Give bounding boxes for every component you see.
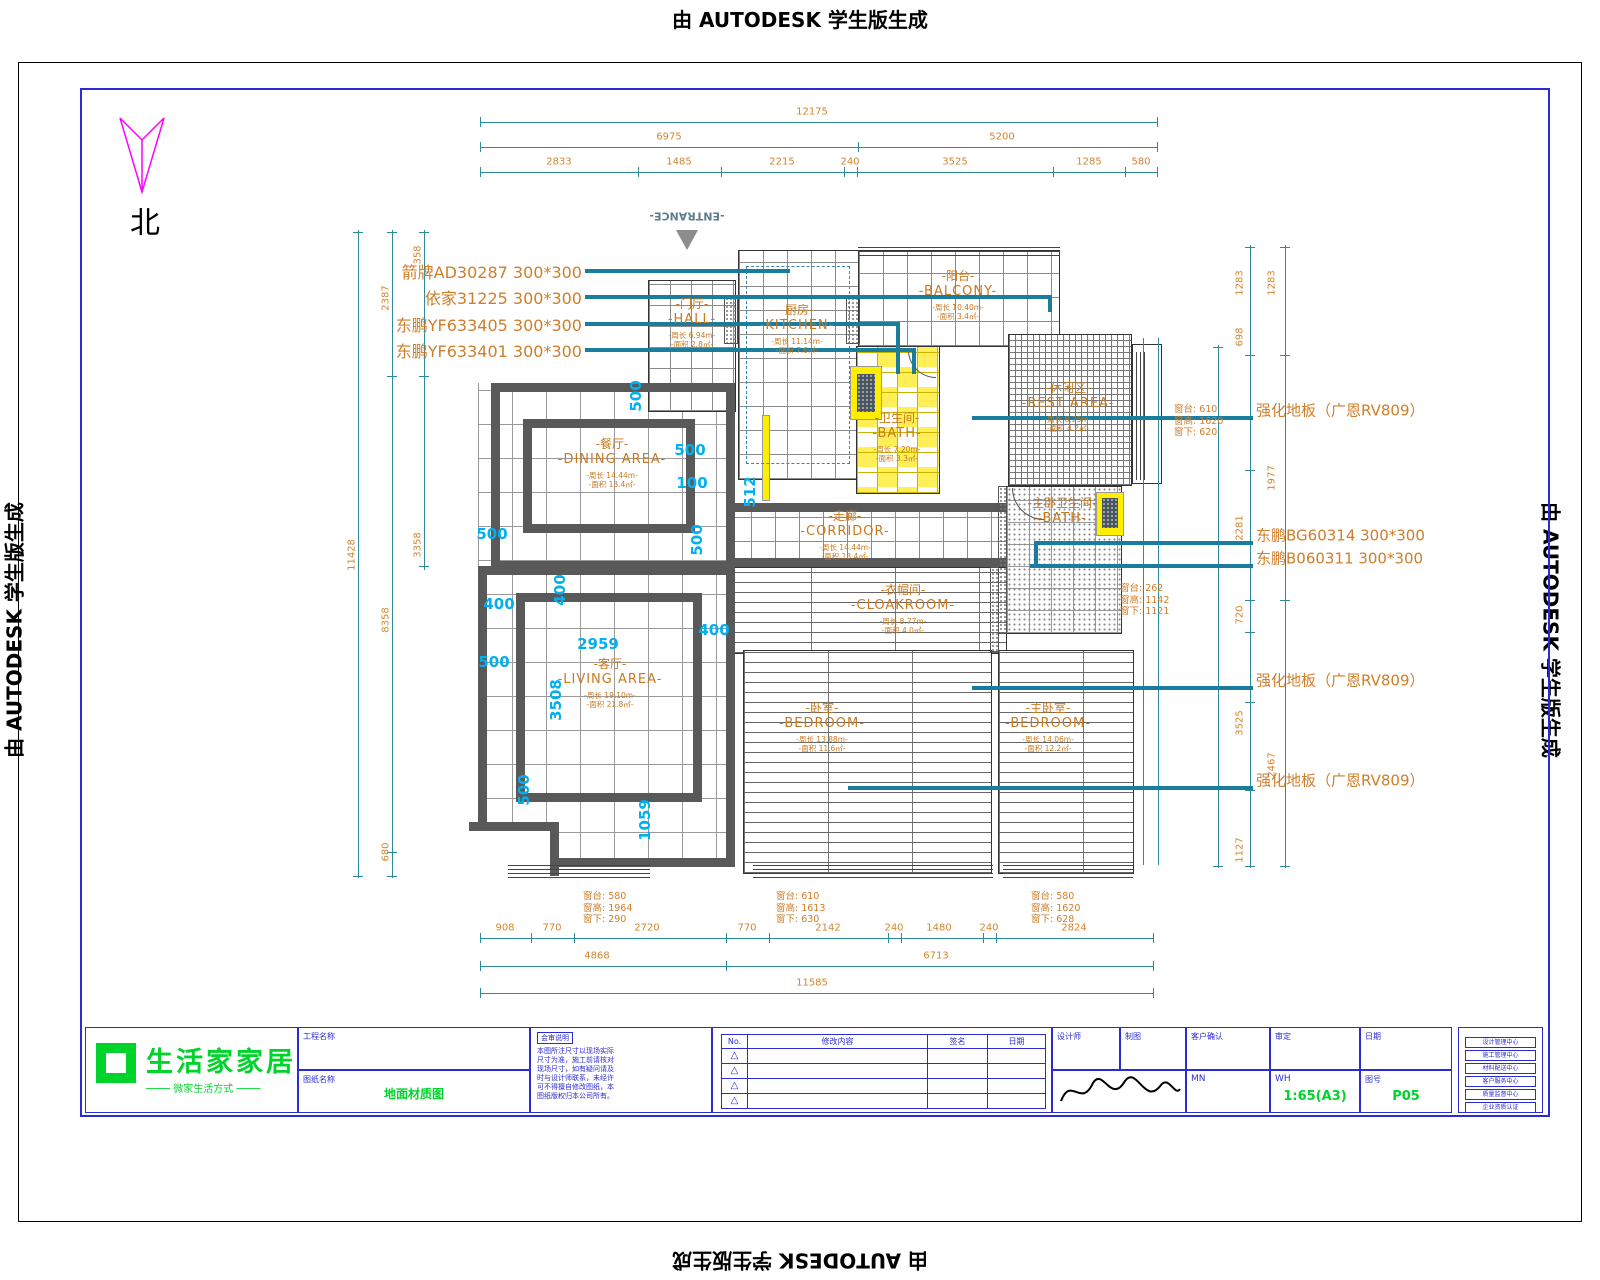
titleblock-drawing-cell: 图纸名称 地面材质图 <box>298 1070 530 1113</box>
dim-text: 2720 <box>634 923 659 934</box>
cyan-dim: 500 <box>478 653 509 671</box>
company-info-box: 客户服务中心 <box>1465 1076 1536 1087</box>
line <box>387 876 397 877</box>
line <box>1245 866 1255 867</box>
room-label: -主卧卫生间--BATH- <box>1028 494 1097 526</box>
titleblock-revision-cell: No.修改内容签名日期△△△△ <box>712 1027 1052 1113</box>
line <box>1245 247 1255 248</box>
line <box>1280 355 1290 356</box>
window-note: 窗台: 610窗高: 1613窗下: 630 <box>776 891 825 926</box>
titleblock-draft-cell: 制图 <box>1120 1027 1186 1070</box>
dim-text: 11428 <box>347 539 358 571</box>
line <box>480 988 481 998</box>
dim-text: 2215 <box>769 157 794 168</box>
cyan-dim: 100 <box>676 474 707 492</box>
revision-cell: 修改内容 <box>747 1034 928 1049</box>
titleblock-signature-cell <box>1052 1070 1186 1113</box>
cyan-dim: 1059 <box>636 799 654 841</box>
line <box>721 167 722 177</box>
revision-cell: 签名 <box>927 1034 988 1049</box>
line <box>353 876 363 877</box>
line <box>1213 347 1223 348</box>
line <box>480 142 481 152</box>
line <box>480 933 481 943</box>
line <box>769 933 770 943</box>
material-label: 东鹏BG60314 300*300 <box>1256 525 1425 546</box>
wh-value: WH <box>1275 1074 1291 1084</box>
line <box>1034 541 1038 568</box>
room-label: -厨房--KITCHEN--周长 11.14m--面积 7.6㎡- <box>760 301 835 355</box>
revision-cell: △ <box>721 1048 748 1064</box>
dim-text: 5200 <box>989 132 1014 143</box>
revision-cell: △ <box>721 1078 748 1094</box>
room-label: -卧室--BEDROOM--周长 13.88m--面积 11.6㎡- <box>779 699 865 753</box>
cyan-dim: 400 <box>698 621 729 639</box>
line <box>972 686 1253 690</box>
dim-text: 240 <box>884 923 903 934</box>
note-line: 可不得擅自修改图纸，本 <box>537 1083 614 1092</box>
logo-tagline: ──── 微家生活方式 ──── <box>146 1080 261 1095</box>
logo-text: 生活家家居 <box>146 1040 296 1079</box>
dim-text: 3525 <box>942 157 967 168</box>
line <box>358 230 359 878</box>
window-note: 窗台: 610窗高: 1620窗下: 620 <box>1174 404 1223 439</box>
line <box>858 142 859 152</box>
line <box>983 933 984 943</box>
line <box>848 786 1253 790</box>
material-label: 强化地板（广恩RV809） <box>1256 400 1425 421</box>
line <box>1030 564 1253 568</box>
line <box>1280 866 1290 867</box>
revision-cell <box>927 1048 988 1064</box>
company-info-box: 设计管理中心 <box>1465 1037 1536 1048</box>
titleblock-logo-cell: 生活家家居 ──── 微家生活方式 ──── <box>85 1027 298 1113</box>
line <box>996 933 997 943</box>
line <box>480 938 1154 939</box>
line <box>480 122 1158 123</box>
revision-cell: No. <box>721 1034 748 1049</box>
line <box>585 348 914 352</box>
designer-label: 设计师 <box>1057 1031 1081 1042</box>
date-label: 日期 <box>1365 1031 1381 1042</box>
designer-signature <box>1053 1071 1183 1111</box>
titleblock-project-cell: 工程名称 <box>298 1027 530 1070</box>
dim-text: 1480 <box>926 923 951 934</box>
mn-value: MN <box>1191 1074 1206 1084</box>
dim-text: 1127 <box>1235 837 1246 862</box>
line <box>1250 245 1251 868</box>
dim-text: 240 <box>840 157 859 168</box>
material-label: 东鹏B060311 300*300 <box>1256 548 1423 569</box>
dim-text: 8358 <box>381 607 392 632</box>
dim-text: 908 <box>495 923 514 934</box>
titleblock-info-cell: 设计管理中心施工管理中心材料配送中心客户服务中心质量监督中心企业资质认证 <box>1458 1027 1543 1113</box>
line <box>353 232 363 233</box>
revision-cell <box>927 1078 988 1094</box>
line <box>1157 142 1158 152</box>
room-label: -客厅--LIVING AREA--周长 19.10m--面积 21.8㎡- <box>558 655 663 709</box>
material-label: 东鹏YF633401 300*300 <box>396 338 582 362</box>
material-label: 东鹏YF633405 300*300 <box>396 312 582 336</box>
window-note: 窗台: 580窗高: 1620窗下: 628 <box>1031 891 1080 926</box>
line <box>480 966 1154 967</box>
company-info-box: 材料配送中心 <box>1465 1063 1536 1074</box>
revision-cell <box>927 1093 988 1109</box>
line <box>1157 167 1158 177</box>
line <box>1245 470 1255 471</box>
line <box>480 167 481 177</box>
line <box>1053 167 1054 177</box>
line <box>901 933 902 943</box>
line <box>1036 541 1253 545</box>
revision-table: No.修改内容签名日期△△△△ <box>721 1034 1045 1108</box>
line <box>480 172 1158 173</box>
material-label: 强化地板（广恩RV809） <box>1256 770 1425 791</box>
line <box>480 117 481 127</box>
revision-cell <box>747 1063 928 1079</box>
revision-cell <box>987 1078 1046 1094</box>
line <box>1245 702 1255 703</box>
line <box>1245 600 1255 601</box>
cyan-dim: 500 <box>627 380 645 411</box>
cyan-dim: 2959 <box>577 635 619 653</box>
line <box>480 993 1154 994</box>
cyan-dim: 500 <box>515 774 533 805</box>
line <box>585 269 790 273</box>
room-label: -卫生间--BATH--周长 7.20m--面积 3.3㎡- <box>872 409 921 463</box>
line <box>419 376 429 377</box>
line <box>1280 247 1290 248</box>
dim-text: 680 <box>381 842 392 861</box>
line <box>585 322 898 326</box>
cyan-dim: 500 <box>476 525 507 543</box>
note-line: 时与设计师联系，未经许 <box>537 1074 614 1083</box>
line <box>1153 961 1154 971</box>
dim-text: 580 <box>1131 157 1150 168</box>
sheet-label: 图号 <box>1365 1074 1381 1085</box>
revision-cell <box>747 1093 928 1109</box>
drawing-sheet: 由 AUTODESK 学生版生成 由 AUTODESK 学生版生成 由 AUTO… <box>0 0 1600 1280</box>
approve-label: 审定 <box>1275 1031 1291 1042</box>
dim-text: 1485 <box>666 157 691 168</box>
titleblock-sheet-cell: 图号 P05 <box>1360 1070 1452 1113</box>
dim-text: 6713 <box>923 951 948 962</box>
dim-text: 770 <box>542 923 561 934</box>
revision-cell <box>747 1078 928 1094</box>
line <box>1157 117 1158 127</box>
titleblock-note-cell: 会审说明 本图所注尺寸以现场实际尺寸为准，施工前请核对现场尺寸，如有疑问请及时与… <box>530 1027 712 1113</box>
dim-text: 698 <box>1235 327 1246 346</box>
revision-cell <box>927 1063 988 1079</box>
titleblock-mn-cell: MN <box>1186 1070 1270 1113</box>
line <box>531 933 532 943</box>
drawing-label: 图纸名称 <box>303 1074 335 1085</box>
cyan-dim: 400 <box>483 595 514 613</box>
room-label: -主卧室--BEDROOM--周长 14.06m--面积 12.2㎡- <box>1005 699 1091 753</box>
line <box>480 147 1158 148</box>
revision-cell <box>987 1063 1046 1079</box>
line <box>1245 790 1255 791</box>
note-line: 图纸版权归本公司所有。 <box>537 1092 614 1101</box>
line <box>480 961 481 971</box>
room-label: -阳台--BALCONY--周长 10.40m--面积 3.4㎡- <box>919 267 997 321</box>
dim-text: 770 <box>737 923 756 934</box>
material-label: 强化地板（广恩RV809） <box>1256 670 1425 691</box>
titleblock-approve-cell: 审定 <box>1270 1027 1360 1070</box>
revision-cell: △ <box>721 1093 748 1109</box>
revision-cell: 日期 <box>987 1034 1046 1049</box>
room-label: -衣帽间--CLOAKROOM--周长 8.77m--面积 4.0㎡- <box>851 581 955 635</box>
line <box>1125 167 1126 177</box>
line <box>419 232 429 233</box>
line <box>1213 866 1223 867</box>
material-label: 箭牌AD30287 300*300 <box>402 259 582 283</box>
window-note: 窗台: 262窗高: 1142窗下: 1121 <box>1120 583 1169 618</box>
company-info-box: 质量监督中心 <box>1465 1089 1536 1100</box>
line <box>387 376 397 377</box>
logo-icon <box>96 1043 136 1083</box>
dim-text: 240 <box>979 923 998 934</box>
revision-cell <box>747 1048 928 1064</box>
note-line: 本图所注尺寸以现场实际 <box>537 1047 614 1056</box>
cyan-dim: 500 <box>674 441 705 459</box>
revision-cell <box>987 1048 1046 1064</box>
dim-text: 720 <box>1235 605 1246 624</box>
line <box>912 348 916 374</box>
drawing-title: 地面材质图 <box>299 1085 529 1102</box>
line <box>1280 600 1290 601</box>
room-label: -走廊--CORRIDOR--周长 14.44m--面积 13.4㎡- <box>800 507 889 561</box>
titleblock-date-cell: 日期 <box>1360 1027 1452 1070</box>
dim-text: 1283 <box>1267 270 1278 295</box>
note-title: 会审说明 <box>537 1032 573 1044</box>
scale-value: 1:65(A3) <box>1271 1089 1359 1104</box>
dim-text: 2281 <box>1235 515 1246 540</box>
line <box>726 933 727 943</box>
line <box>1048 295 1052 312</box>
dim-text: 3525 <box>1235 710 1246 735</box>
dim-text: 4868 <box>584 951 609 962</box>
line <box>1153 933 1154 943</box>
dim-text: 2387 <box>381 285 392 310</box>
cyan-dim: 512 <box>741 476 759 507</box>
room-label: -门厅--HALL--周长 6.94m--面积 2.8㎡- <box>668 295 716 349</box>
note-line: 现场尺寸，如有疑问请及 <box>537 1065 614 1074</box>
cyan-dim: 500 <box>688 524 706 555</box>
dim-text: 12175 <box>796 107 828 118</box>
revision-cell <box>987 1093 1046 1109</box>
revision-cell: △ <box>721 1063 748 1079</box>
cyan-dim: 400 <box>551 574 569 605</box>
dim-text: 1285 <box>1076 157 1101 168</box>
dim-text: 6975 <box>656 132 681 143</box>
titleblock-designer-cell: 设计师 <box>1052 1027 1120 1070</box>
line <box>1153 988 1154 998</box>
sheet-number: P05 <box>1361 1089 1451 1104</box>
dim-text: 3358 <box>413 532 424 557</box>
line <box>574 933 575 943</box>
note-text: 本图所注尺寸以现场实际尺寸为准，施工前请核对现场尺寸，如有疑问请及时与设计师联系… <box>537 1047 614 1101</box>
company-info-box: 企业资质认证 <box>1465 1102 1536 1113</box>
line <box>726 961 727 971</box>
line <box>1245 355 1255 356</box>
titleblock-scale-cell: WH 1:65(A3) <box>1270 1070 1360 1113</box>
line <box>857 167 858 177</box>
line <box>387 232 397 233</box>
company-info-box: 施工管理中心 <box>1465 1050 1536 1061</box>
line <box>1245 632 1255 633</box>
dim-text: 2833 <box>546 157 571 168</box>
dim-text: 1977 <box>1267 465 1278 490</box>
dim-text: 11585 <box>796 978 828 989</box>
dim-text: 1283 <box>1235 270 1246 295</box>
line <box>844 167 845 177</box>
line <box>419 566 429 567</box>
material-label: 依家31225 300*300 <box>425 285 582 309</box>
draft-label: 制图 <box>1125 1031 1141 1042</box>
line <box>638 167 639 177</box>
note-line: 尺寸为准，施工前请核对 <box>537 1056 614 1065</box>
room-label: -餐厅--DINING AREA--周长 14.44m--面积 13.4㎡- <box>558 435 666 489</box>
line <box>888 933 889 943</box>
titleblock-client-cell: 客户确认 <box>1186 1027 1270 1070</box>
room-label: -休闲区--REST AREA--周长 8.25m--面积 4.2㎡- <box>1022 379 1115 433</box>
window-note: 窗台: 580窗高: 1964窗下: 290 <box>583 891 632 926</box>
project-label: 工程名称 <box>303 1031 335 1042</box>
client-label: 客户确认 <box>1191 1031 1223 1042</box>
line <box>392 230 393 878</box>
